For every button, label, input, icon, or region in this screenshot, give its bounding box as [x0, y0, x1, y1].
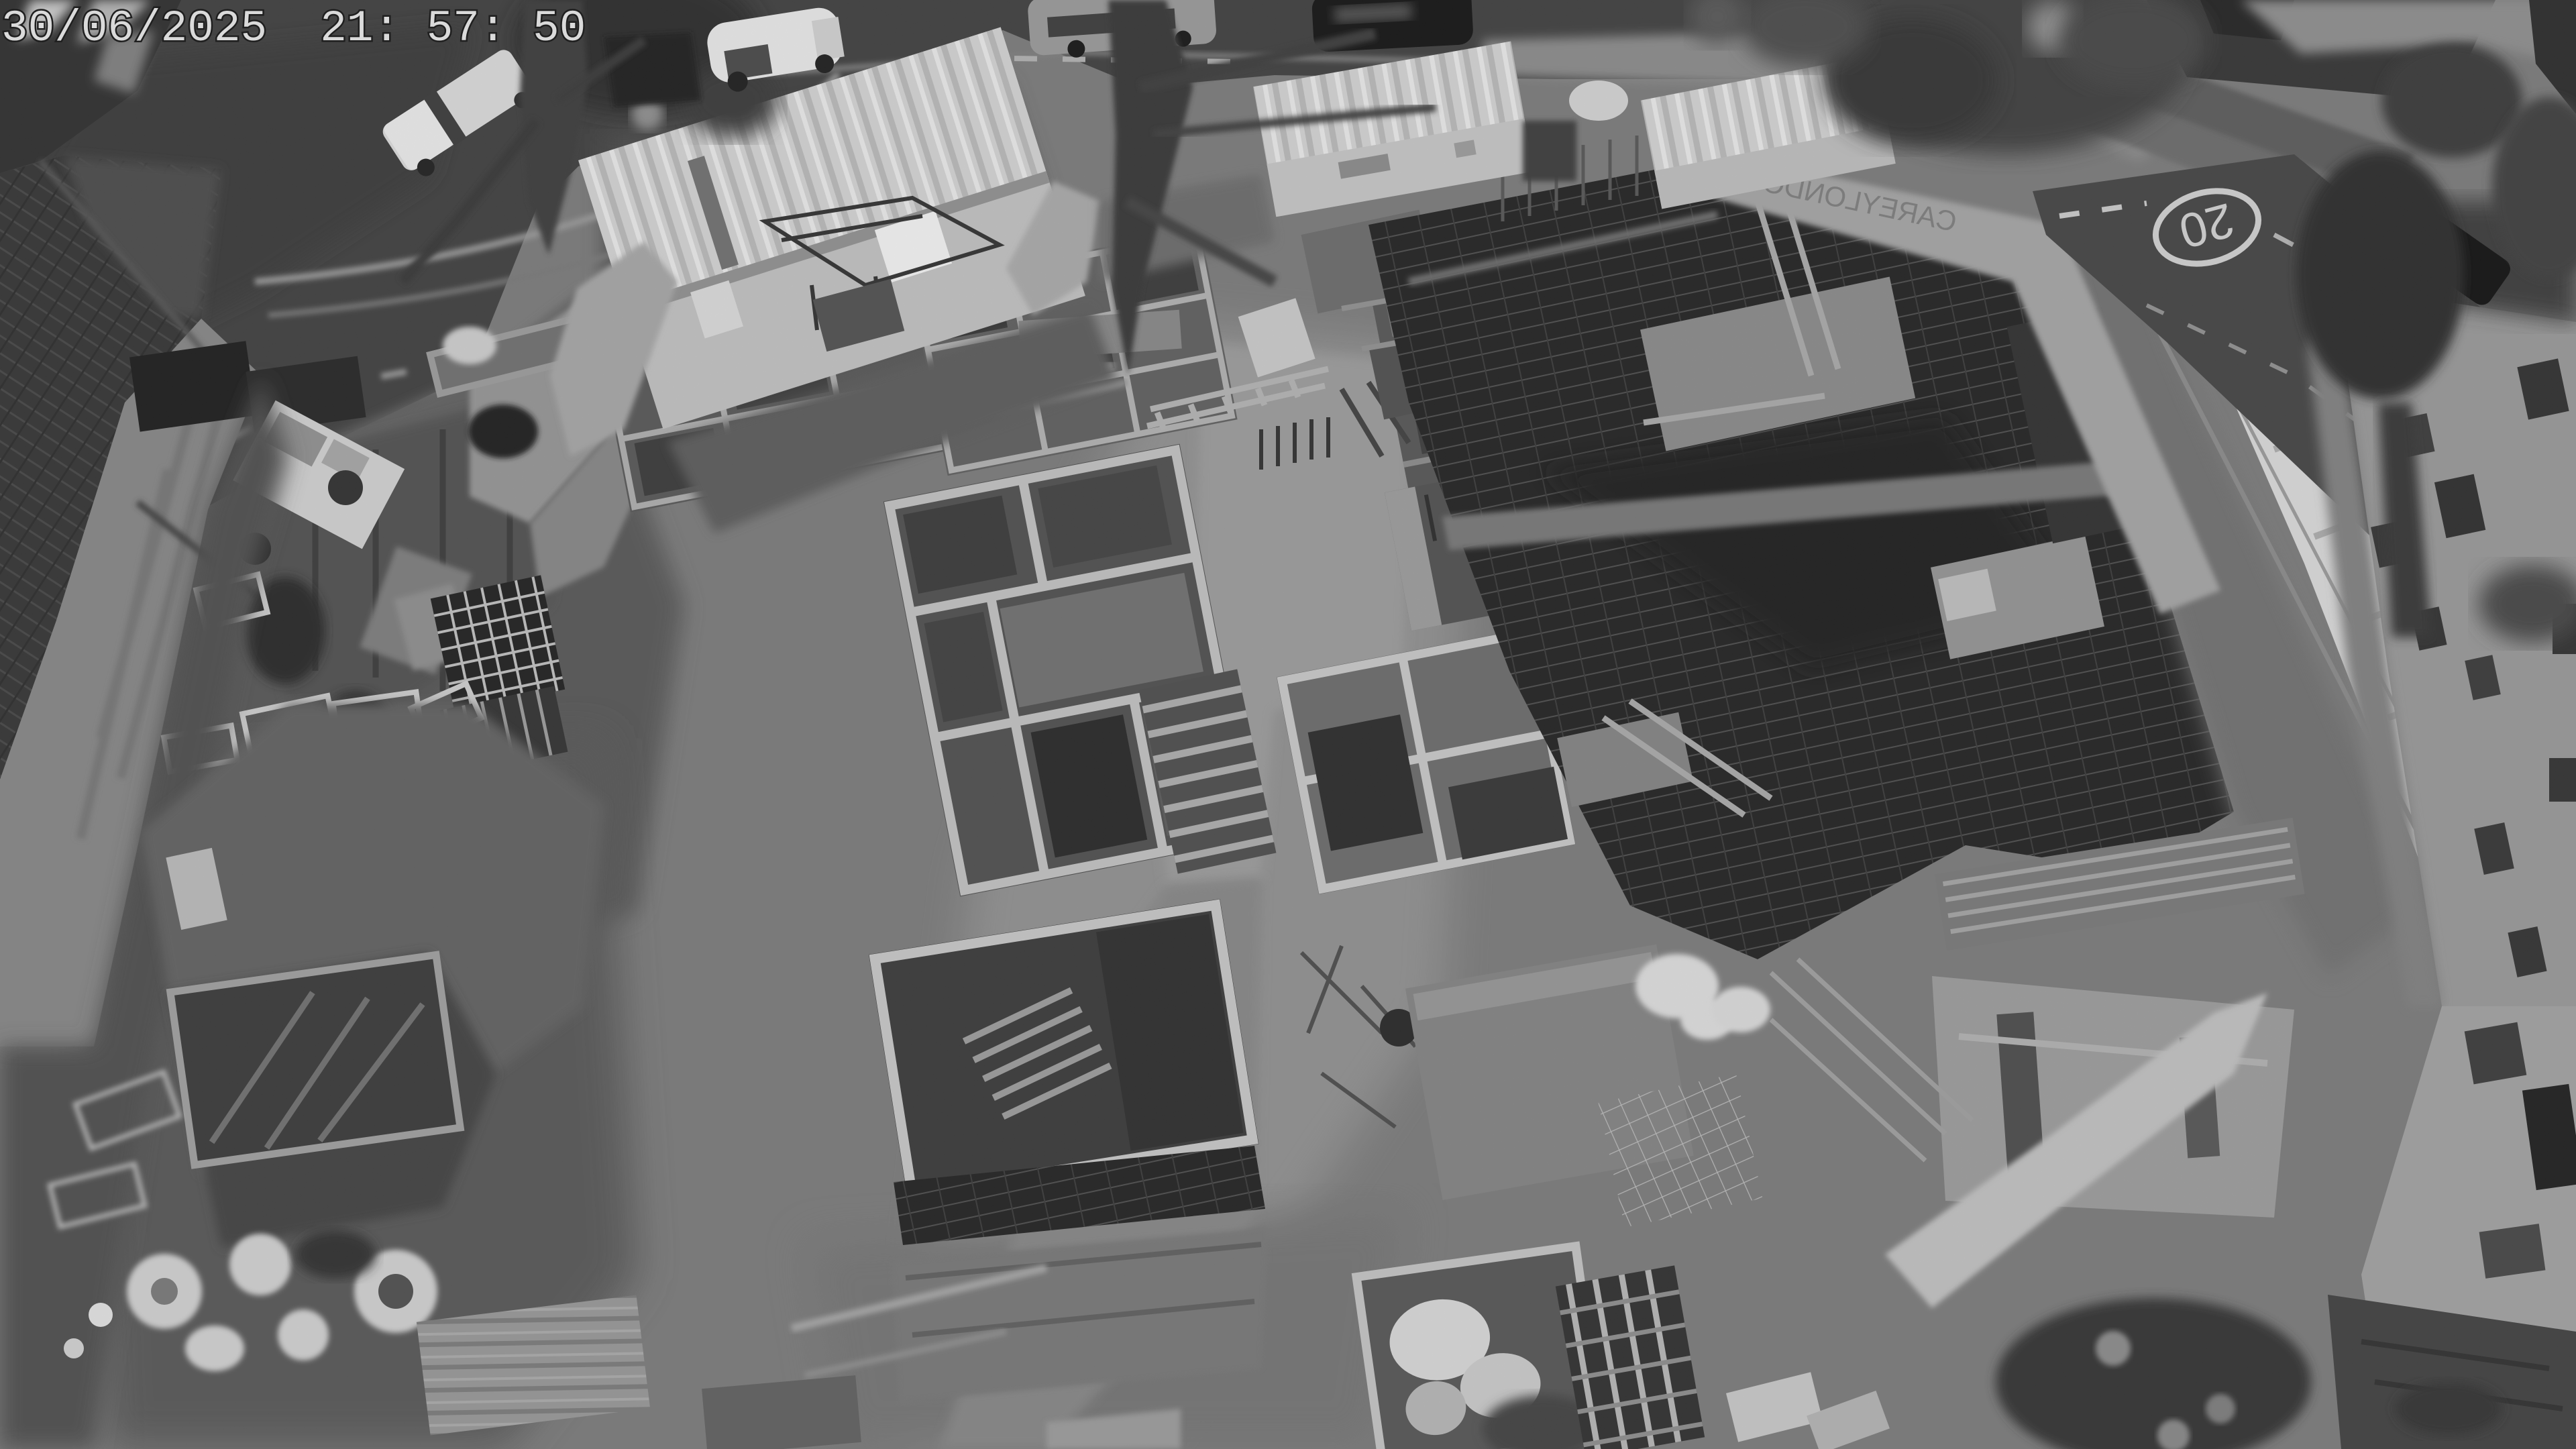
svg-text:30/06/2025 21: 57: 50: 30/06/2025 21: 57: 50: [1, 3, 586, 54]
